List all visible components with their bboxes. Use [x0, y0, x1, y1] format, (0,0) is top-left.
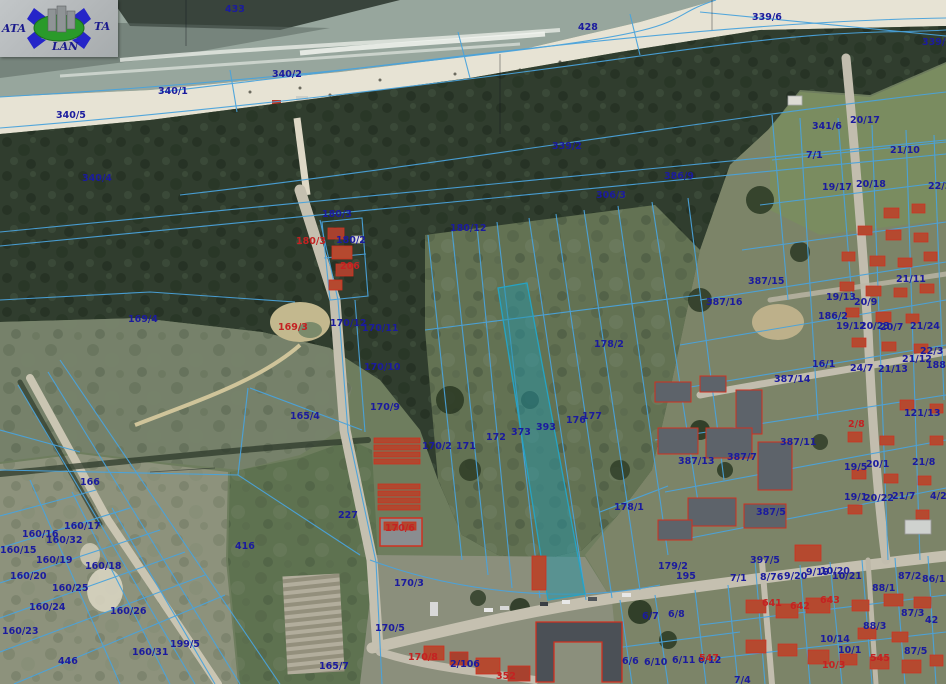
parcel-label-340-5: 340/5 [56, 110, 86, 121]
parcel-label-340-2: 340/2 [272, 69, 302, 80]
parcel-label-160-32: 160/32 [46, 535, 83, 546]
parcel-label-170-8: 170/8 [408, 652, 438, 663]
parcel-label-387-11: 387/11 [780, 437, 817, 448]
parcel-label-180-3: 180/3 [296, 236, 326, 247]
parcel-label-165-4: 165/4 [290, 411, 320, 422]
parcel-label-387-14: 387/14 [774, 374, 811, 385]
logo-text-left: ATA [2, 22, 26, 35]
parcel-label-387-5: 387/5 [756, 507, 786, 518]
parcel-label-387-16: 387/16 [706, 297, 743, 308]
parcel-label-20-17: 20/17 [850, 115, 880, 126]
parcel-label-178-2: 178/2 [594, 339, 624, 350]
parcel-label-87-2: 87/2 [898, 571, 921, 582]
parcel-label-20-18: 20/18 [856, 179, 886, 190]
parcel-label-169-3: 169/3 [278, 322, 308, 333]
parcel-label-6-7: 6/7 [642, 611, 659, 622]
parcel-label-7-4: 7/4 [734, 675, 751, 684]
parcel-label-7-1: 7/1 [806, 150, 823, 161]
parcel-label-160-17: 160/17 [64, 521, 101, 532]
parcel-label-19-13: 19/13 [826, 292, 856, 303]
parcel-label-160-19: 160/19 [36, 555, 73, 566]
parcel-label-170-10: 170/10 [364, 362, 401, 373]
parcel-label-428: 428 [578, 22, 598, 33]
parcel-label-21-24: 21/24 [910, 321, 940, 332]
parcel-label-199-5: 199/5 [170, 639, 200, 650]
parcel-label-373: 373 [511, 427, 531, 438]
parcel-label-446: 446 [58, 656, 78, 667]
parcel-label-177: 177 [582, 411, 602, 422]
parcel-label-4-2: 4/2 [930, 491, 946, 502]
parcel-label-6-11: 6/11 [672, 655, 695, 666]
parcel-label-387-15: 387/15 [748, 276, 785, 287]
parcel-label-387-13: 387/13 [678, 456, 715, 467]
parcel-label-180-12: 180/12 [450, 223, 487, 234]
parcel-label-643: 643 [820, 595, 840, 606]
parcel-label-545: 545 [870, 653, 890, 664]
parcel-label-170-6: 170/6 [385, 523, 415, 534]
parcel-label-22-2: 22/2 [928, 181, 946, 192]
parcel-label-88-1: 88/1 [872, 583, 895, 594]
parcel-label-6-6: 6/6 [622, 656, 639, 667]
parcel-label-547: 547 [699, 653, 719, 664]
parcel-label-20-1: 20/1 [866, 459, 889, 470]
parcel-label-88-3: 88/3 [863, 621, 886, 632]
parcel-label-340-1: 340/1 [158, 86, 188, 97]
parcel-label-170-5: 170/5 [375, 623, 405, 634]
parcel-label-21-8: 21/8 [912, 457, 935, 468]
parcel-label-170-3: 170/3 [394, 578, 424, 589]
parcel-label-20-7: 20/7 [880, 322, 903, 333]
parcel-label-24-7: 24/7 [850, 363, 873, 374]
parcel-label-340-4: 340/4 [82, 173, 112, 184]
parcel-label-8-76: 8/76 [760, 572, 783, 583]
parcel-label-227: 227 [338, 510, 358, 521]
parcel-label-170-9: 170/9 [370, 402, 400, 413]
parcel-label-87-3: 87/3 [901, 608, 924, 619]
parcel-label-160-26: 160/26 [110, 606, 147, 617]
parcel-label-188: 188 [926, 360, 946, 371]
parcel-label-170-11: 170/11 [362, 323, 399, 334]
parcel-label-21-11: 21/11 [896, 274, 926, 285]
parcel-label-180-3: 180/3 [322, 209, 352, 220]
parcel-label-21-13: 21/13 [878, 364, 908, 375]
parcel-label-172: 172 [486, 432, 506, 443]
parcel-label-42: 42 [925, 615, 938, 626]
parcel-label-19-17: 19/17 [822, 182, 852, 193]
parcel-label-339-2: 339/2 [552, 141, 582, 152]
parcel-labels-layer: 433428339/6339/3340/2340/1340/5340/4339/… [0, 0, 946, 684]
parcel-label-20-22: 20/22 [864, 493, 894, 504]
parcel-label-206: 206 [340, 261, 360, 272]
logo-watermark: ATA TA LAN [0, 0, 118, 57]
parcel-label-416: 416 [235, 541, 255, 552]
parcel-label-397-5: 397/5 [750, 555, 780, 566]
parcel-label-160-15: 160/15 [0, 545, 37, 556]
parcel-label-2-8: 2/8 [848, 419, 865, 430]
parcel-label-10-14: 10/14 [820, 634, 850, 645]
parcel-label-10-1: 10/1 [838, 645, 861, 656]
parcel-label-165-7: 165/7 [319, 661, 349, 672]
parcel-label-387-7: 387/7 [727, 452, 757, 463]
parcel-label-339-6: 339/6 [752, 12, 782, 23]
parcel-label-178-1: 178/1 [614, 502, 644, 513]
parcel-label-2-106: 2/106 [450, 659, 480, 670]
parcel-label-169-4: 169/4 [128, 314, 158, 325]
parcel-label-10-21: 10/21 [832, 571, 862, 582]
logo-text-right: TA [94, 20, 110, 33]
parcel-label-642: 642 [790, 601, 810, 612]
parcel-label-160-18: 160/18 [85, 561, 122, 572]
parcel-label-7-1: 7/1 [730, 573, 747, 584]
parcel-label-16-1: 16/1 [812, 359, 835, 370]
parcel-label-6-8: 6/8 [668, 609, 685, 620]
parcel-label-180-2: 180/2 [336, 235, 366, 246]
parcel-label-19-5: 19/5 [844, 462, 867, 473]
parcel-label-393: 393 [536, 422, 556, 433]
parcel-label-341-6: 341/6 [812, 121, 842, 132]
cadastral-map-viewport[interactable]: 433428339/6339/3340/2340/1340/5340/4339/… [0, 0, 946, 684]
parcel-label-171: 171 [456, 441, 476, 452]
parcel-label-87-5: 87/5 [904, 646, 927, 657]
parcel-label-166: 166 [80, 477, 100, 488]
parcel-label-195: 195 [676, 571, 696, 582]
parcel-label-352: 352 [496, 671, 516, 682]
parcel-label-86-1: 86/1 [922, 574, 945, 585]
parcel-label-160-23: 160/23 [2, 626, 39, 637]
logo-text-bottom: LAN [52, 40, 78, 53]
parcel-label-160-24: 160/24 [29, 602, 66, 613]
parcel-label-433: 433 [225, 4, 245, 15]
parcel-label-21-7: 21/7 [892, 491, 915, 502]
parcel-label-160-31: 160/31 [132, 647, 169, 658]
parcel-label-306-3: 306/3 [596, 190, 626, 201]
parcel-label-9-20: 9/20 [784, 571, 807, 582]
parcel-label-386-9: 386/9 [664, 171, 694, 182]
parcel-label-20-9: 20/9 [854, 297, 877, 308]
parcel-label-10-3: 10/3 [822, 660, 845, 671]
parcel-label-641: 641 [762, 598, 782, 609]
parcel-label-339-3: 339/3 [922, 37, 946, 48]
parcel-label-6-10: 6/10 [644, 657, 667, 668]
parcel-label-21-10: 21/10 [890, 145, 920, 156]
parcel-label-121-13: 121/13 [904, 408, 941, 419]
parcel-label-160-20: 160/20 [10, 571, 47, 582]
parcel-label-170-2: 170/2 [422, 441, 452, 452]
parcel-label-160-25: 160/25 [52, 583, 89, 594]
